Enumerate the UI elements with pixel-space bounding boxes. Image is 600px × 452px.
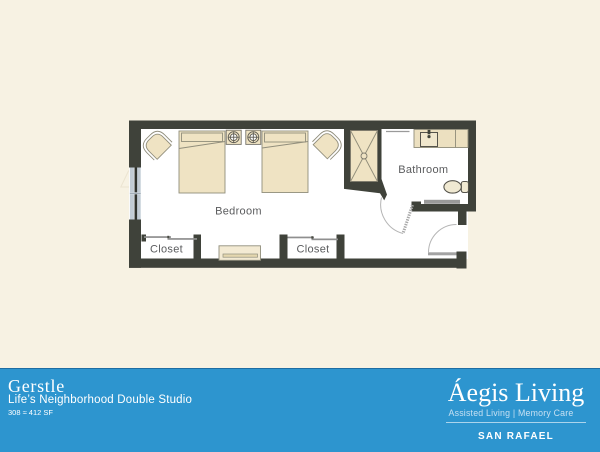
svg-text:Bathroom: Bathroom xyxy=(398,164,448,176)
svg-text:Closet: Closet xyxy=(297,244,330,256)
svg-text:Bedroom: Bedroom xyxy=(215,206,262,218)
svg-text:Closet: Closet xyxy=(150,244,183,256)
